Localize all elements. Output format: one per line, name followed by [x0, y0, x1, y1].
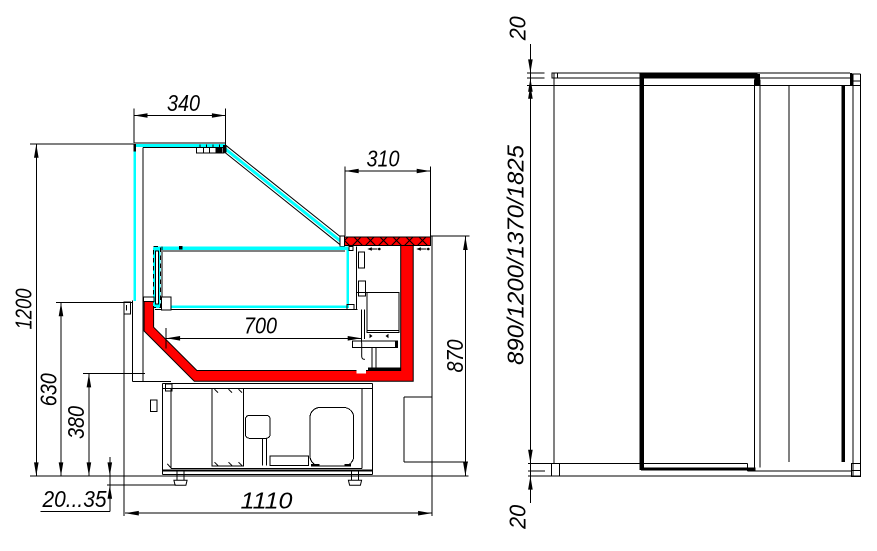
svg-text:1200: 1200: [11, 288, 37, 329]
svg-text:20...35: 20...35: [42, 486, 107, 512]
svg-text:1110: 1110: [241, 488, 293, 514]
svg-text:340: 340: [167, 90, 200, 116]
svg-text:20: 20: [505, 505, 531, 530]
svg-text:700: 700: [244, 313, 277, 339]
svg-text:630: 630: [35, 373, 61, 406]
svg-text:870: 870: [442, 339, 468, 372]
svg-text:310: 310: [367, 145, 400, 171]
svg-text:380: 380: [63, 406, 89, 439]
svg-text:890/1200/1370/1825: 890/1200/1370/1825: [503, 145, 529, 365]
svg-text:20: 20: [505, 16, 531, 41]
